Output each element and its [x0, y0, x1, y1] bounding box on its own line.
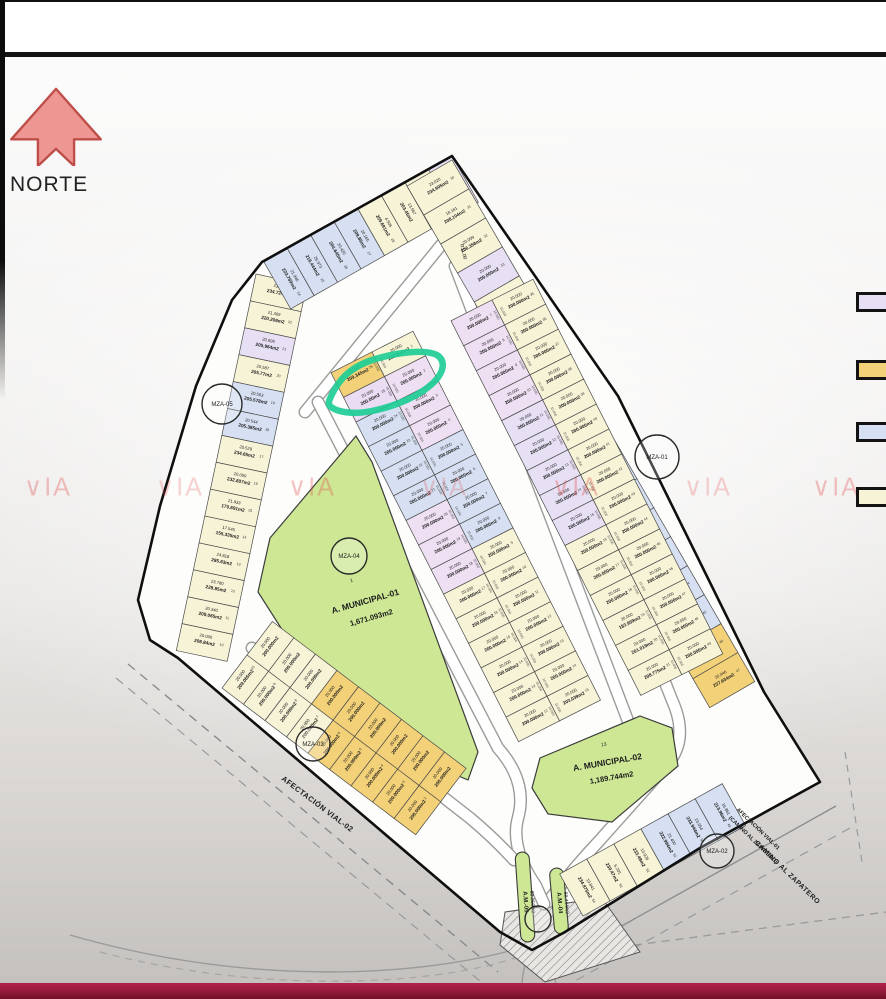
svg-text:17: 17 [259, 454, 264, 459]
svg-text:15: 15 [248, 508, 253, 513]
svg-text:MZA-02: MZA-02 [706, 849, 728, 855]
svg-text:22: 22 [288, 320, 293, 325]
svg-text:13: 13 [236, 562, 241, 567]
bottom-accent-bar [0, 983, 886, 999]
legend-swatch-gold-lot [856, 360, 886, 380]
svg-text:14: 14 [242, 535, 247, 540]
svg-text:MZA-01: MZA-01 [646, 455, 668, 461]
top-bar [0, 0, 886, 57]
svg-text:10: 10 [219, 643, 224, 648]
svg-text:12: 12 [231, 589, 236, 594]
svg-text:20: 20 [276, 374, 281, 379]
screenshot-page: NORTE A.M.-0580.058m2A.M.-0460.444m221.3… [0, 0, 886, 999]
svg-text:16: 16 [253, 481, 258, 486]
svg-text:18: 18 [265, 428, 270, 433]
legend-swatch-lavender-lot [856, 292, 886, 312]
svg-text:CAMINO AL ZAPATERO: CAMINO AL ZAPATERO [753, 840, 821, 906]
svg-text:MZA-03: MZA-03 [302, 742, 324, 748]
legend-swatch-cream-lot [856, 487, 886, 507]
svg-text:11: 11 [225, 616, 229, 621]
svg-text:MZA-05: MZA-05 [211, 402, 233, 408]
svg-text:19: 19 [270, 401, 275, 406]
svg-text:21: 21 [282, 347, 287, 352]
svg-text:MZA-04: MZA-04 [338, 554, 360, 560]
legend-swatch-blue-lot [856, 422, 886, 442]
plat-map: A.M.-0580.058m2A.M.-0460.444m221.306234.… [0, 62, 886, 999]
